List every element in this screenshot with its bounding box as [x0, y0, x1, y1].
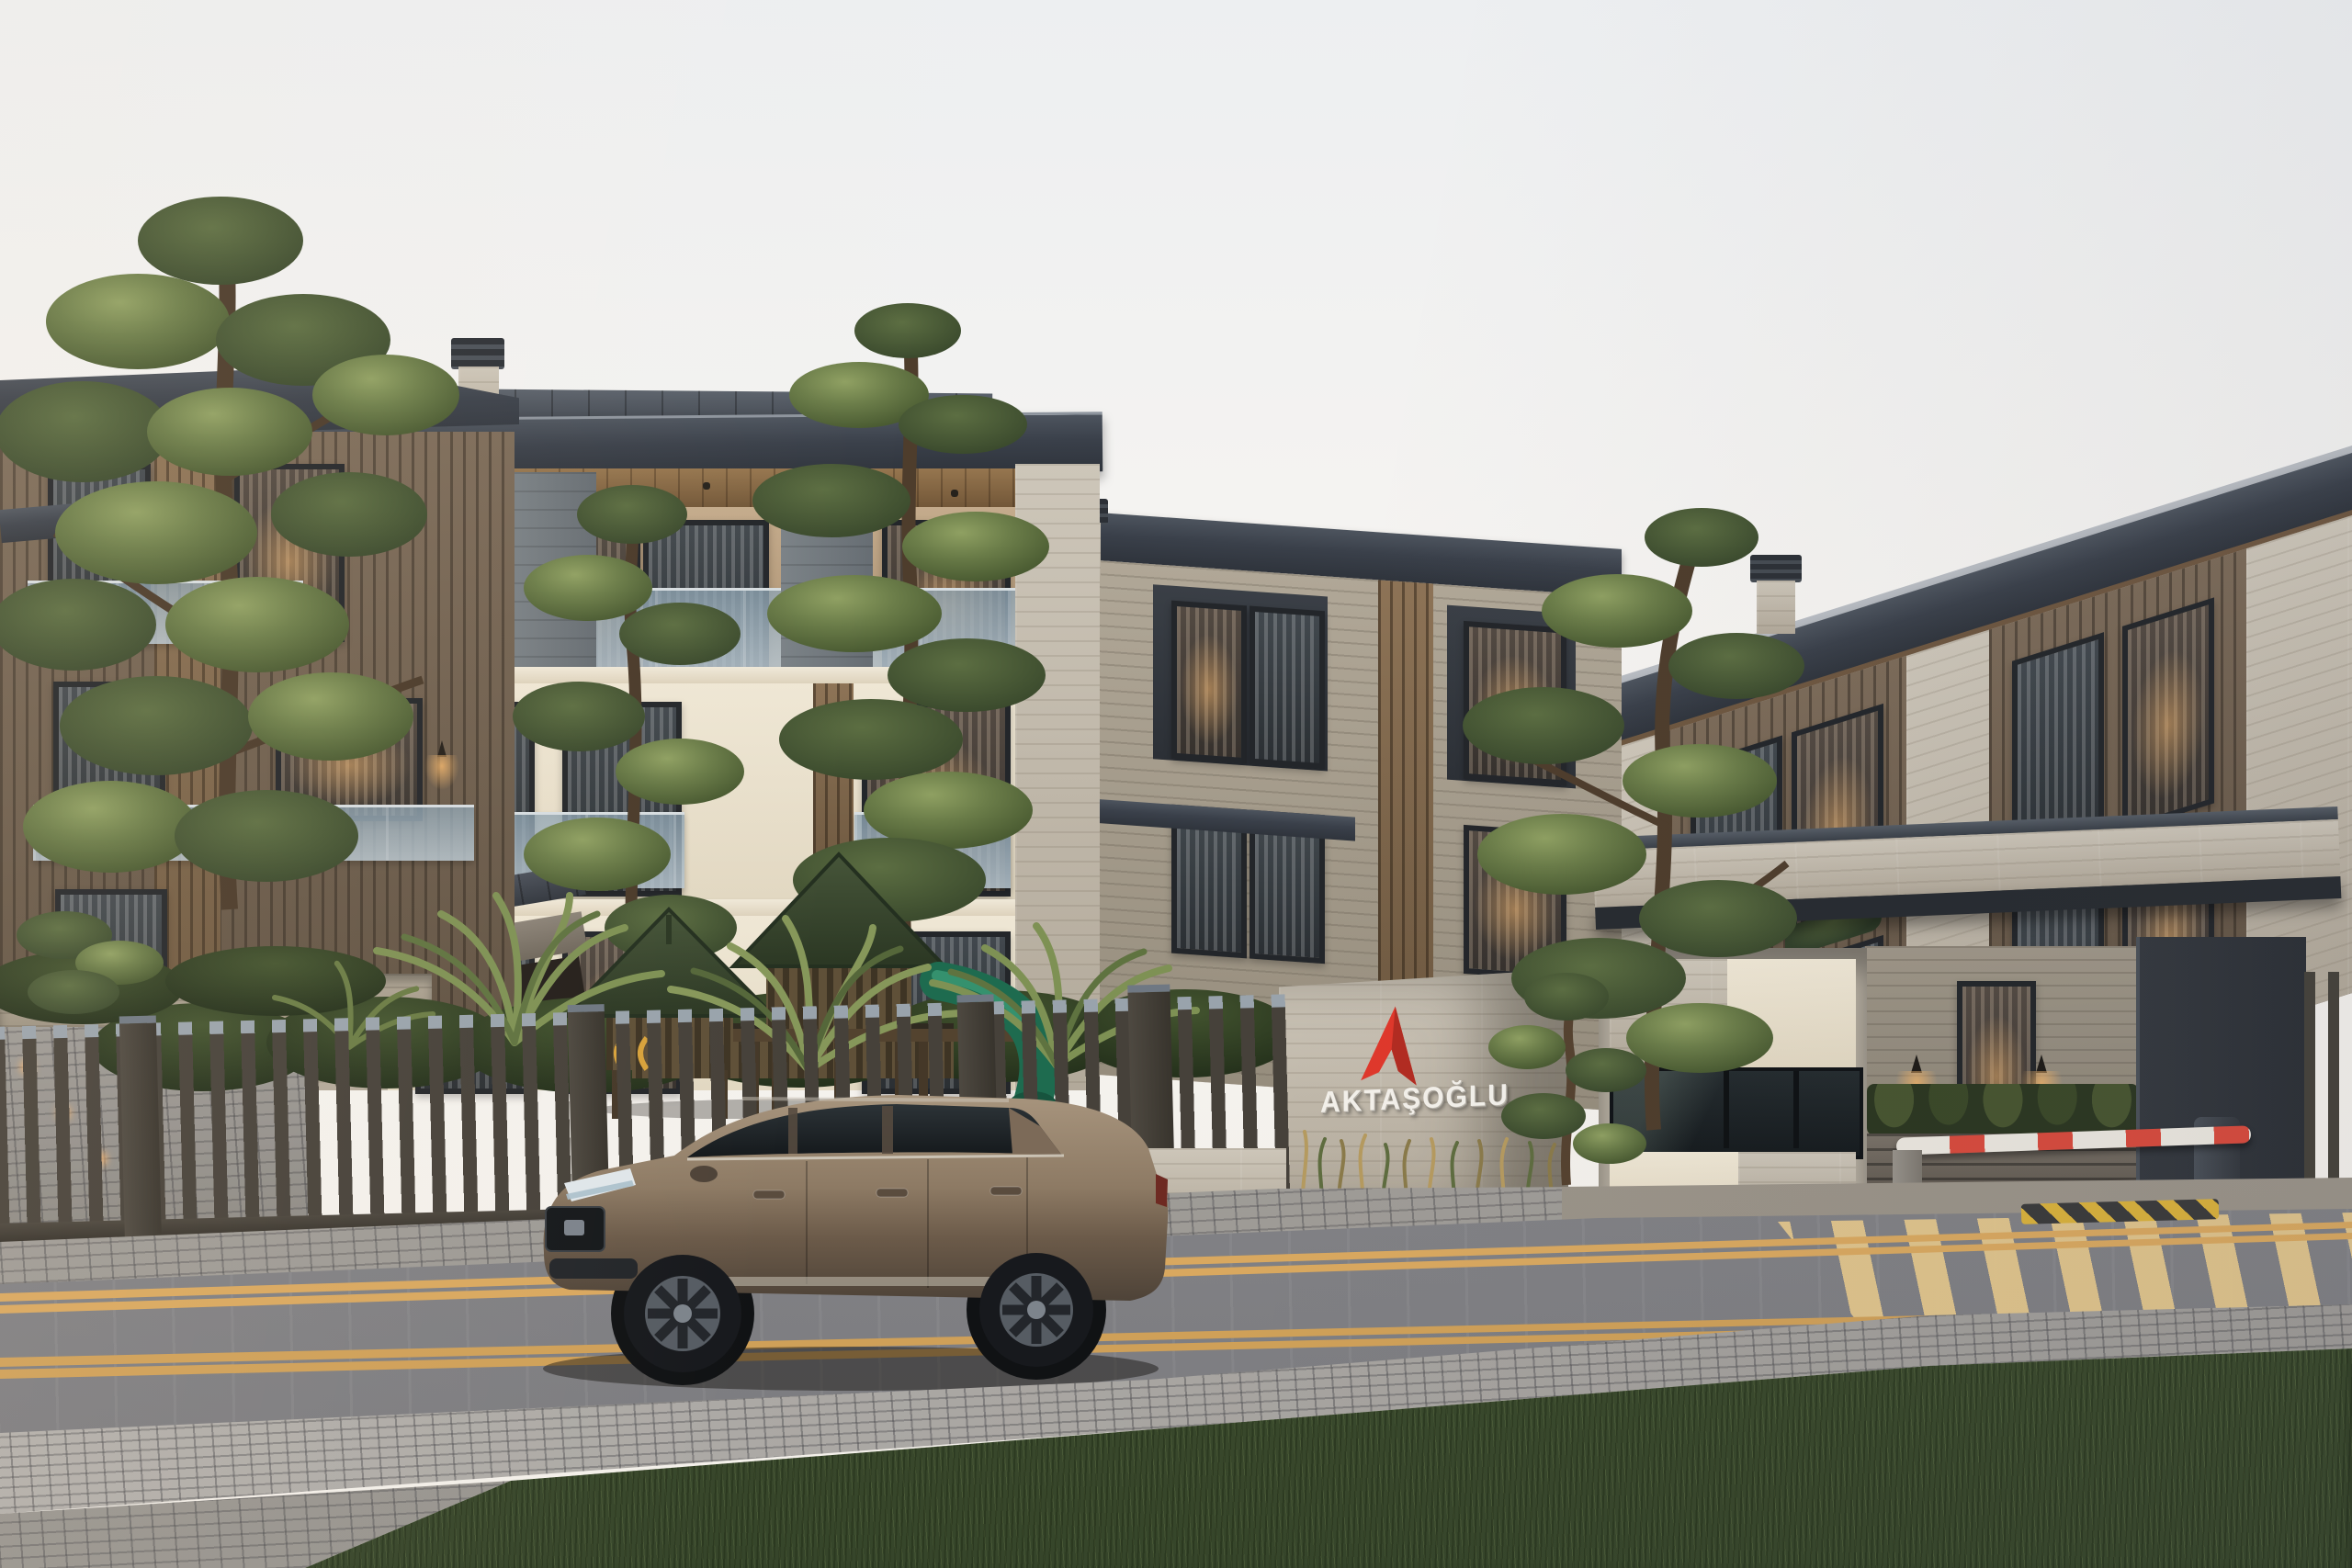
front-wheel	[624, 1255, 741, 1372]
fence-post	[119, 1015, 162, 1249]
rear-wheel	[979, 1253, 1093, 1367]
suv-vehicle	[513, 1045, 1197, 1404]
render-canvas: AKTAŞOĞLU	[0, 0, 2352, 1568]
